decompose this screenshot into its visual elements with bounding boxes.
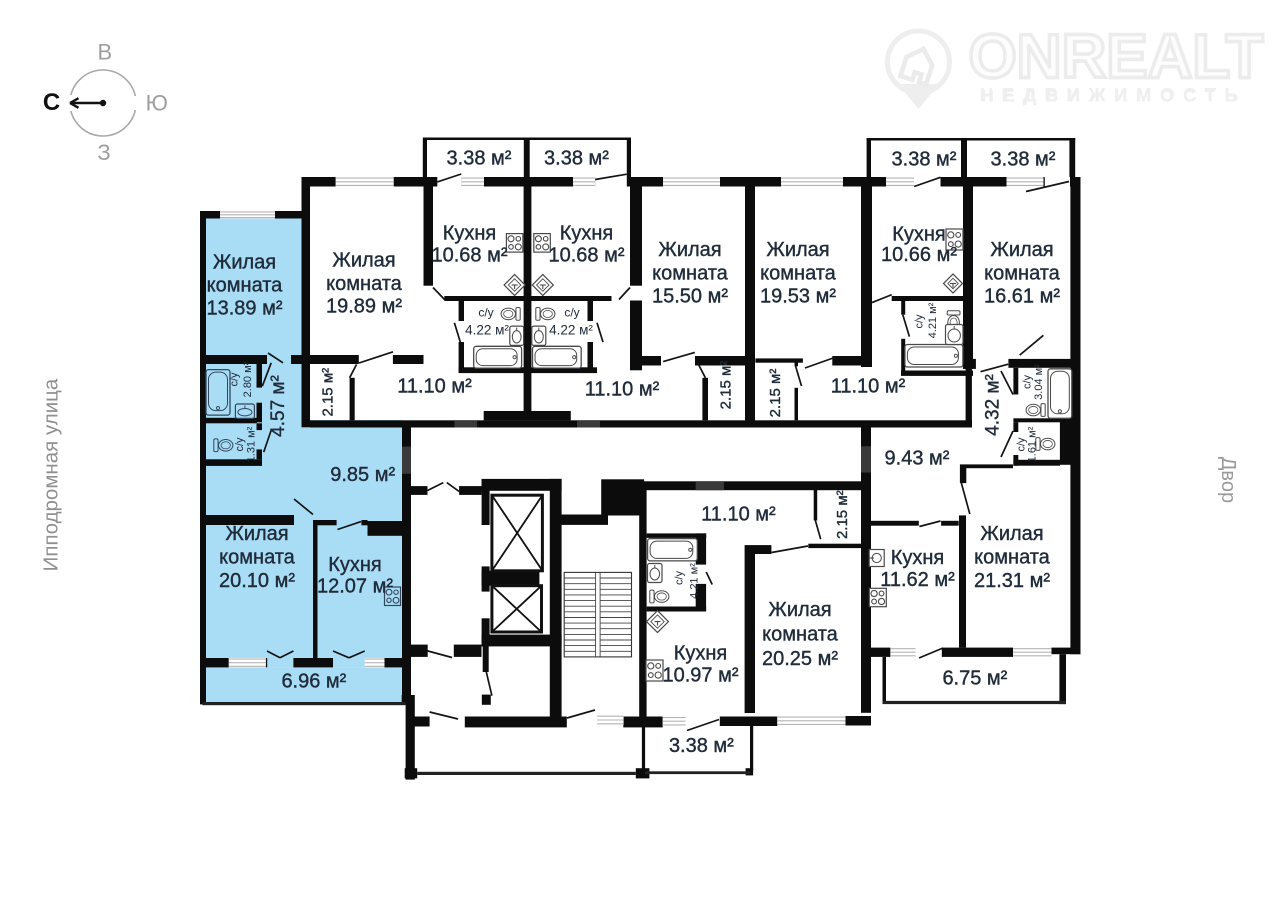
svg-text:6.75 м²: 6.75 м²: [942, 668, 1007, 690]
svg-text:С: С: [43, 89, 60, 116]
svg-text:4.57 м²: 4.57 м²: [268, 375, 289, 437]
svg-text:с/у: с/у: [234, 437, 246, 452]
svg-text:3.38 м²: 3.38 м²: [669, 735, 734, 757]
svg-text:комната: комната: [219, 547, 296, 569]
svg-text:Кухня: Кухня: [560, 223, 614, 245]
svg-text:Жилая: Жилая: [980, 523, 1043, 545]
svg-text:4.22 м²: 4.22 м²: [549, 323, 593, 338]
svg-text:В: В: [98, 40, 113, 65]
svg-text:комната: комната: [760, 263, 837, 285]
svg-text:13.89 м²: 13.89 м²: [206, 298, 282, 320]
svg-text:11.10 м²: 11.10 м²: [397, 376, 472, 398]
svg-text:3.38 м²: 3.38 м²: [892, 149, 957, 171]
svg-text:11.10 м²: 11.10 м²: [701, 504, 776, 526]
svg-text:Жилая: Жилая: [768, 599, 831, 621]
svg-text:20.10 м²: 20.10 м²: [219, 570, 295, 592]
svg-text:10.97 м²: 10.97 м²: [662, 665, 738, 687]
svg-text:Ю: Ю: [146, 90, 168, 115]
svg-text:11.62 м²: 11.62 м²: [880, 569, 955, 591]
svg-text:4.22 м²: 4.22 м²: [465, 323, 509, 338]
svg-text:21.31 м²: 21.31 м²: [974, 570, 1050, 592]
svg-text:комната: комната: [974, 547, 1051, 569]
svg-text:4.32 м²: 4.32 м²: [983, 374, 1004, 436]
svg-text:6.96 м²: 6.96 м²: [281, 670, 346, 692]
svg-text:комната: комната: [326, 273, 403, 295]
svg-text:НЕДВИЖИМОСТЬ: НЕДВИЖИМОСТЬ: [982, 87, 1247, 106]
svg-text:3.38 м²: 3.38 м²: [544, 147, 609, 169]
svg-text:19.89 м²: 19.89 м²: [326, 296, 402, 318]
svg-text:Кухня: Кухня: [674, 642, 728, 664]
svg-text:с/у: с/у: [1022, 374, 1034, 389]
svg-text:Кухня: Кухня: [892, 224, 946, 246]
svg-text:Жилая: Жилая: [658, 239, 721, 261]
svg-text:2.15 м²: 2.15 м²: [834, 490, 851, 539]
svg-text:Жилая: Жилая: [766, 239, 829, 261]
svg-text:Жилая: Жилая: [332, 249, 395, 271]
svg-text:комната: комната: [207, 274, 284, 296]
svg-text:2.15 м²: 2.15 м²: [320, 368, 337, 417]
svg-text:3.04 м²: 3.04 м²: [1033, 364, 1045, 400]
svg-text:4.21 м²: 4.21 м²: [689, 563, 701, 599]
svg-text:Ипподромная улица: Ипподромная улица: [40, 378, 63, 571]
svg-text:ONREALT: ONREALT: [968, 23, 1263, 92]
svg-text:9.85 м²: 9.85 м²: [330, 464, 395, 486]
svg-text:2.80 м²: 2.80 м²: [242, 361, 254, 397]
svg-text:Кухня: Кухня: [891, 547, 945, 569]
svg-text:10.68 м²: 10.68 м²: [431, 245, 507, 267]
svg-text:11.10 м²: 11.10 м²: [831, 376, 906, 398]
svg-text:1.61 м²: 1.61 м²: [1027, 426, 1039, 462]
svg-text:Кухня: Кухня: [443, 223, 497, 245]
svg-text:20.25 м²: 20.25 м²: [762, 648, 838, 670]
svg-text:с/у: с/у: [478, 305, 493, 319]
svg-text:Кухня: Кухня: [328, 554, 382, 576]
svg-text:19.53 м²: 19.53 м²: [760, 286, 836, 308]
svg-text:12.07 м²: 12.07 м²: [317, 575, 393, 597]
svg-text:2.15 м²: 2.15 м²: [767, 369, 784, 418]
svg-text:комната: комната: [652, 263, 729, 285]
svg-text:комната: комната: [762, 623, 839, 645]
svg-text:3.38 м²: 3.38 м²: [447, 147, 512, 169]
svg-text:9.43 м²: 9.43 м²: [885, 448, 950, 470]
svg-text:Жилая: Жилая: [225, 523, 288, 545]
svg-text:Жилая: Жилая: [990, 239, 1053, 261]
svg-text:10.68 м²: 10.68 м²: [548, 245, 624, 267]
svg-text:комната: комната: [984, 263, 1061, 285]
svg-text:Двор: Двор: [1217, 457, 1239, 503]
svg-text:с/у: с/у: [564, 305, 579, 319]
svg-text:Жилая: Жилая: [213, 251, 276, 273]
svg-text:с/у: с/у: [674, 570, 686, 585]
svg-text:11.10 м²: 11.10 м²: [585, 379, 660, 401]
svg-text:15.50 м²: 15.50 м²: [652, 286, 728, 308]
svg-text:З: З: [97, 140, 110, 165]
svg-text:с/у: с/у: [229, 372, 241, 387]
svg-text:с/у: с/у: [914, 314, 926, 329]
svg-text:16.61 м²: 16.61 м²: [984, 286, 1060, 308]
svg-text:4.21 м²: 4.21 м²: [927, 302, 939, 338]
svg-text:1.31 м²: 1.31 м²: [246, 426, 258, 462]
svg-text:3.38 м²: 3.38 м²: [991, 149, 1056, 171]
svg-text:10.66 м²: 10.66 м²: [881, 244, 957, 266]
svg-text:2.15 м²: 2.15 м²: [718, 361, 735, 410]
